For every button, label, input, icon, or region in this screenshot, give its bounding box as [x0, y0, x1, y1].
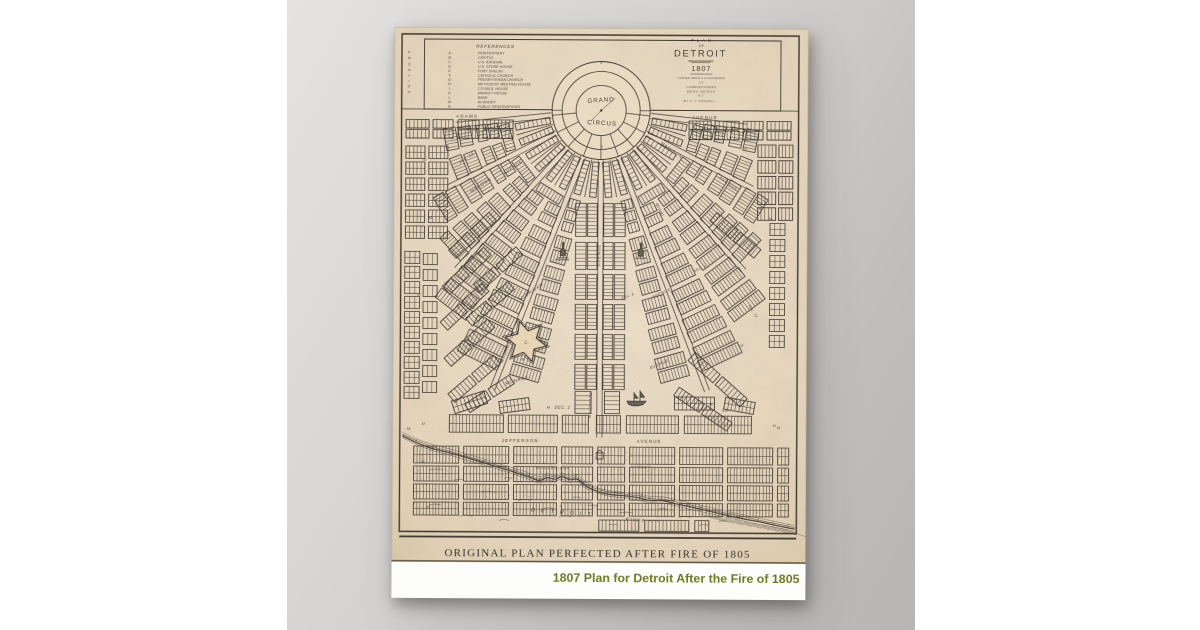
- svg-text:C.: C.: [524, 339, 529, 344]
- svg-text:ADAMS: ADAMS: [456, 113, 478, 118]
- svg-text:ACADEMY: ACADEMY: [477, 100, 497, 104]
- svg-text:M: M: [769, 216, 773, 220]
- svg-text:M.: M.: [427, 505, 432, 509]
- svg-text:Sail.: Sail.: [722, 407, 732, 412]
- svg-text:COUNCIL HOUSE: COUNCIL HOUSE: [478, 86, 509, 90]
- svg-text:MEIGS, DETROIT: MEIGS, DETROIT: [687, 89, 716, 93]
- svg-text:1807: 1807: [691, 64, 711, 73]
- svg-text:COMMISSIONERS: COMMISSIONERS: [686, 84, 716, 88]
- svg-text:CIRCUS: CIRCUS: [587, 119, 617, 128]
- svg-text:AVENUE: AVENUE: [637, 438, 662, 443]
- svg-text:GRAND: GRAND: [587, 96, 615, 105]
- svg-text:PUBLIC RESERVATIONS: PUBLIC RESERVATIONS: [478, 104, 521, 108]
- svg-text:M.: M.: [777, 425, 782, 430]
- svg-text:M: M: [740, 343, 744, 347]
- svg-text:B.: B.: [448, 55, 452, 59]
- svg-text:MARKET HOUSE: MARKET HOUSE: [478, 91, 508, 95]
- svg-text:OF: OF: [699, 80, 704, 84]
- svg-text:JEFFERSON: JEFFERSON: [502, 437, 539, 442]
- svg-text:M: M: [421, 459, 425, 463]
- svg-text:AVENUE: AVENUE: [692, 115, 718, 120]
- svg-text:REFERENCES: REFERENCES: [476, 43, 515, 48]
- svg-text:STREET: STREET: [631, 465, 651, 469]
- svg-text:CAPITOL: CAPITOL: [478, 55, 494, 59]
- svg-text:U.S. ARSENAL: U.S. ARSENAL: [478, 60, 503, 64]
- svg-text:I.: I.: [449, 86, 452, 90]
- svg-text:M.: M.: [709, 402, 714, 406]
- svg-text:N.: N.: [448, 104, 453, 108]
- svg-text:DEC. 2: DEC. 2: [554, 404, 570, 409]
- svg-text:WOODBRIDGE: WOODBRIDGE: [536, 466, 571, 470]
- svg-text:DETROIT: DETROIT: [674, 47, 727, 58]
- svg-text:A.: A.: [447, 51, 452, 55]
- svg-text:G.: G.: [448, 77, 453, 81]
- svg-text:M: M: [422, 421, 426, 425]
- svg-text:K.: K.: [448, 91, 452, 95]
- svg-text:M: M: [417, 292, 421, 296]
- svg-text:PRESBYTERIAN CHURCH: PRESBYTERIAN CHURCH: [478, 77, 523, 81]
- svg-text:N.Y.: N.Y.: [698, 93, 705, 97]
- svg-text:RIVER: RIVER: [626, 516, 647, 523]
- svg-text:E.: E.: [448, 68, 452, 72]
- svg-text:M: M: [429, 216, 433, 220]
- svg-text:A. B. O. E. L. I. N. E.: A. B. O. E. L. I. N. E.: [407, 50, 411, 94]
- svg-text:M: M: [744, 146, 748, 150]
- svg-text:H.: H.: [448, 82, 453, 86]
- svg-text:F.: F.: [449, 73, 453, 77]
- svg-text:ORIGINAL PLAN PERFECTED AFTER: ORIGINAL PLAN PERFECTED AFTER FIRE OF 18…: [444, 547, 750, 561]
- svg-text:(BY A. Y. MONDEL) . .: (BY A. Y. MONDEL) . .: [683, 98, 720, 102]
- svg-text:METHODIST MEETING HOUSE: METHODIST MEETING HOUSE: [478, 82, 532, 86]
- svg-text:M: M: [423, 157, 427, 161]
- svg-text:PENITENTIARY: PENITENTIARY: [478, 51, 505, 55]
- svg-text:C.: C.: [448, 60, 453, 64]
- svg-text:M.: M.: [407, 425, 412, 430]
- svg-text:COPIED FROM A LITHOGRAPH: COPIED FROM A LITHOGRAPH: [678, 75, 725, 79]
- svg-text:M: M: [547, 405, 551, 409]
- svg-text:D.: D.: [448, 64, 453, 68]
- svg-text:M.: M.: [448, 100, 453, 104]
- svg-text:AVENUE: AVENUE: [596, 243, 601, 265]
- svg-text:L.: L.: [448, 95, 452, 99]
- svg-text:U.S. STORE HOUSE: U.S. STORE HOUSE: [478, 64, 513, 68]
- svg-text:CATHOLIC CHURCH: CATHOLIC CHURCH: [478, 73, 513, 77]
- svg-text:o: o: [600, 60, 602, 64]
- svg-text:P L A N: P L A N: [691, 38, 712, 43]
- svg-text:BANK: BANK: [478, 95, 489, 99]
- svg-text:FORT SHELBY: FORT SHELBY: [478, 69, 504, 73]
- svg-text:M.: M.: [521, 357, 526, 361]
